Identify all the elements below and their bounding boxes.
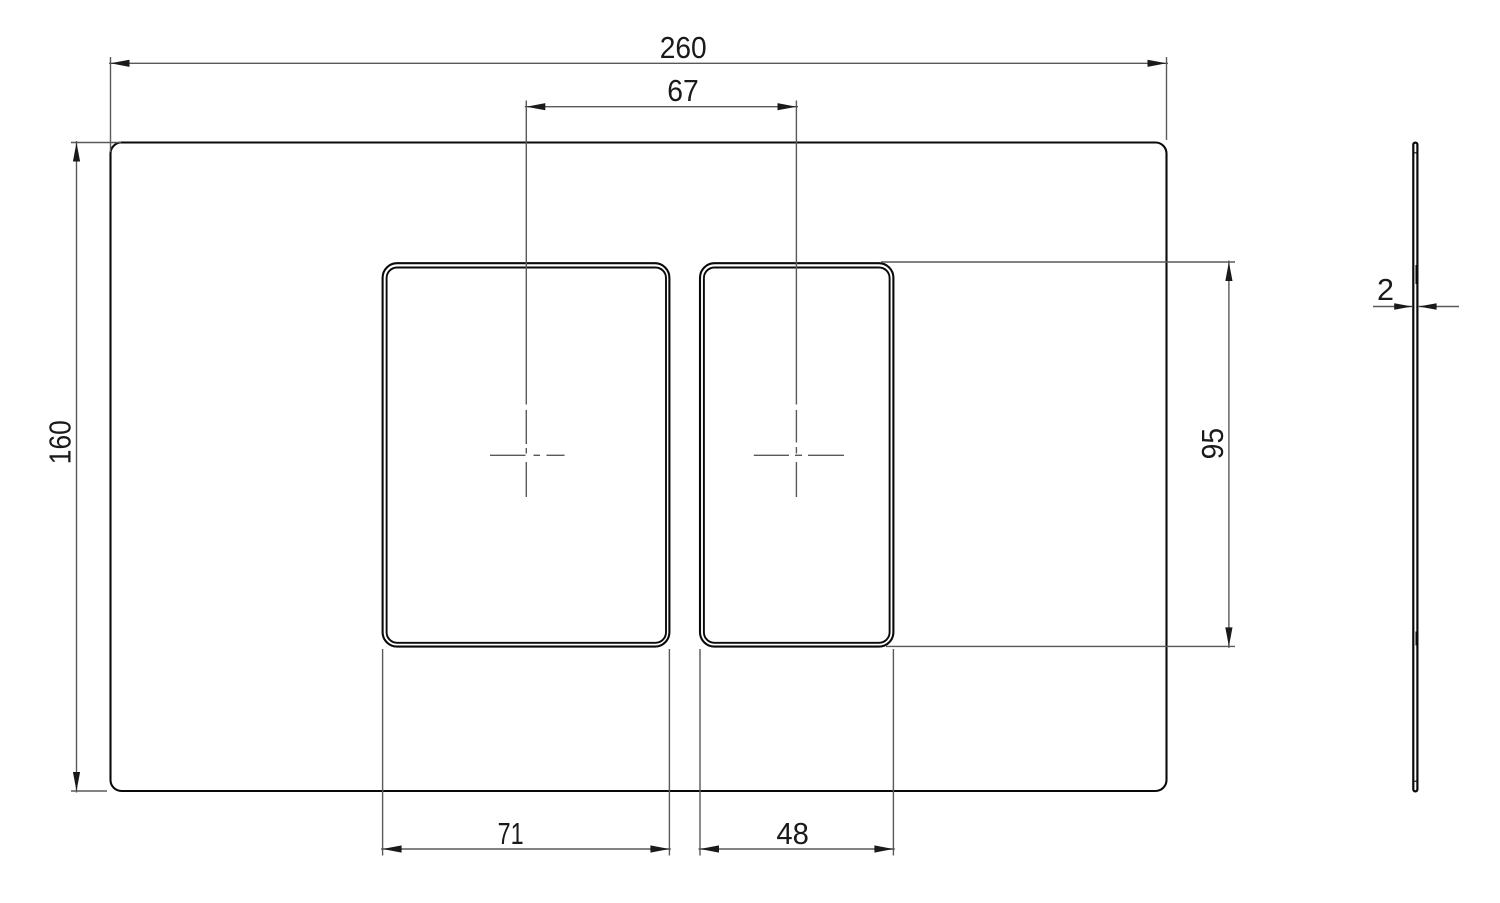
svg-text:260: 260 [660,31,707,65]
svg-text:95: 95 [1196,428,1230,460]
svg-text:71: 71 [498,817,524,851]
svg-text:2: 2 [1377,273,1394,307]
svg-text:67: 67 [667,74,699,108]
svg-text:160: 160 [44,420,78,464]
svg-text:48: 48 [776,817,809,851]
